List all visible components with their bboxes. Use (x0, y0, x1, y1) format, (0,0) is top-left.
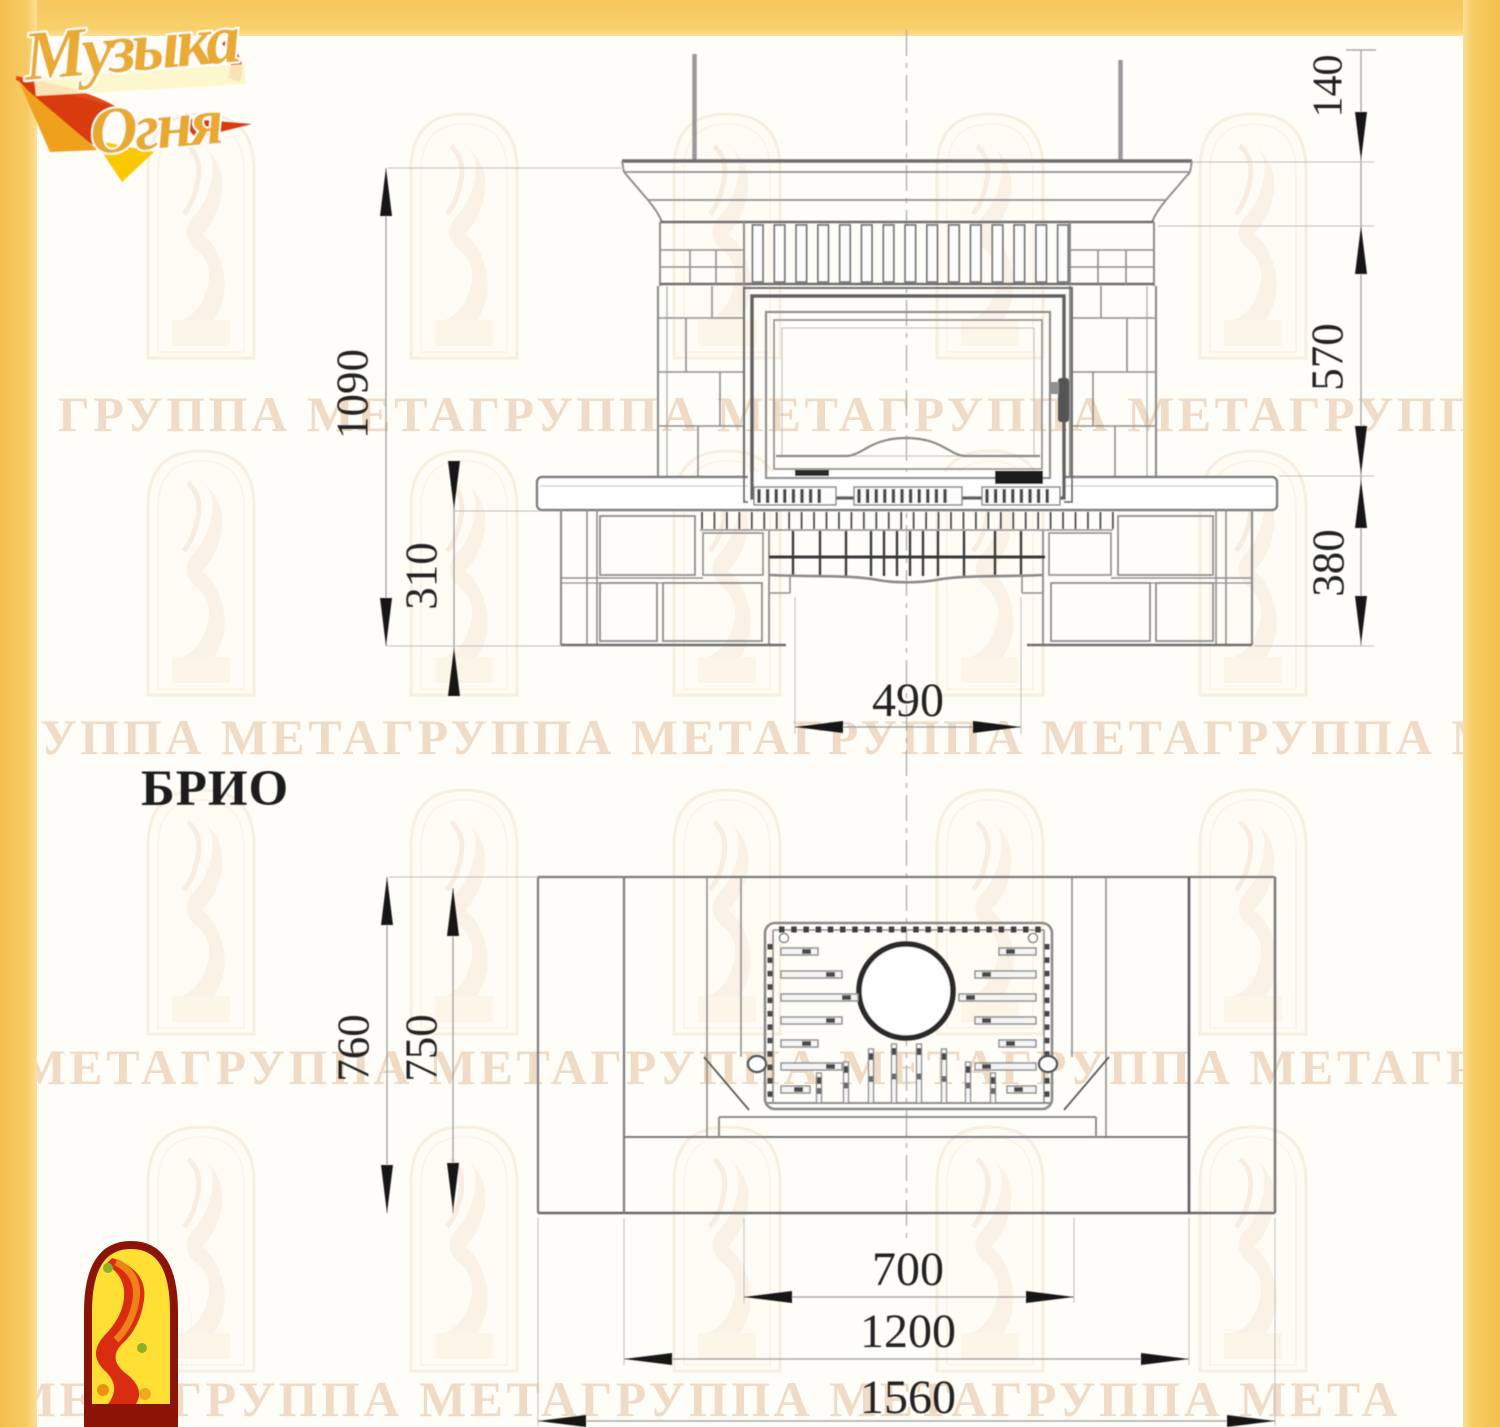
svg-text:Огня: Огня (87, 85, 225, 169)
svg-text:1560: 1560 (860, 1371, 956, 1424)
svg-text:БРИО: БРИО (141, 761, 289, 817)
svg-text:ГРУППА МЕТАГРУППА МЕТАГРУППА М: ГРУППА МЕТАГРУППА МЕТАГРУППА МЕТАГРУППА … (0, 1371, 1401, 1427)
svg-text:140: 140 (1306, 55, 1352, 118)
svg-text:310: 310 (396, 542, 446, 610)
svg-text:1090: 1090 (327, 349, 377, 439)
svg-text:700: 700 (872, 1243, 944, 1296)
svg-text:750: 750 (396, 1014, 446, 1082)
svg-text:760: 760 (328, 1014, 378, 1082)
svg-text:490: 490 (872, 674, 944, 727)
svg-text:570: 570 (1302, 323, 1352, 391)
svg-text:ГРУППА МЕТАГРУППА МЕТАГРУППА М: ГРУППА МЕТАГРУППА МЕТАГРУППА МЕТАГРУППА … (0, 709, 1500, 765)
svg-text:380: 380 (1303, 529, 1353, 597)
svg-text:ГРУППА МЕТАГРУППА МЕТАГРУППА М: ГРУППА МЕТАГРУППА МЕТАГРУППА МЕТАГРУППА … (58, 386, 1500, 442)
svg-text:1200: 1200 (860, 1305, 956, 1358)
